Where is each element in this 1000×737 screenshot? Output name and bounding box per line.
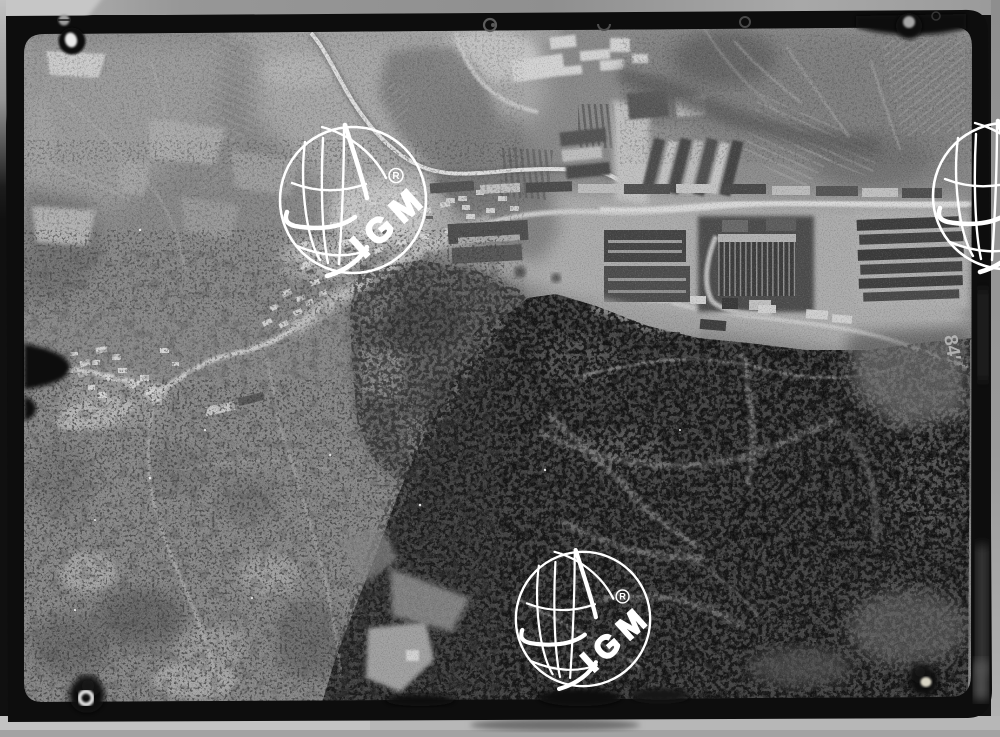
svg-text:84′: 84′ <box>939 333 964 362</box>
